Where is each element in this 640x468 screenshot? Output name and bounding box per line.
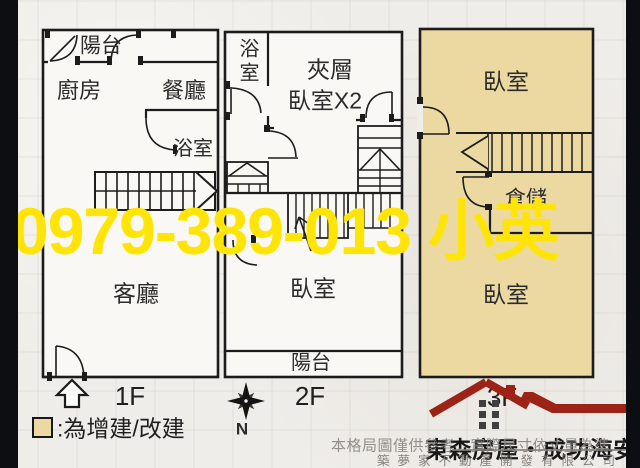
company-name: 築夢家不動產開發有限公司 <box>377 455 623 468</box>
room-label-1f-living: 客廳 <box>113 283 159 306</box>
disclaimer-strike-line <box>452 449 634 451</box>
room-label-2f-mezzanine-x2: 臥室X2 <box>288 90 362 113</box>
room-label-3f-bedroom-top: 臥室 <box>483 71 529 94</box>
room-label-3f-bedroom-bottom: 臥室 <box>483 284 529 307</box>
room-label-2f-bathroom: 浴室 <box>237 38 257 86</box>
compass-rose-icon <box>229 384 263 418</box>
letterbox-bar-left <box>0 0 18 468</box>
legend-addition-swatch <box>32 417 53 438</box>
room-label-2f-mezzanine: 夾層 <box>307 59 353 82</box>
compass-north-label: N <box>236 421 248 438</box>
room-label-1f-dining: 餐廳 <box>162 80 206 102</box>
floor-label-1f: 1F <box>115 383 145 409</box>
room-label-1f-bathroom: 浴室 <box>173 139 213 159</box>
floor-label-3f: 3F <box>487 384 517 410</box>
phone-watermark: 0979-389-013 小英 <box>12 198 558 264</box>
entry-arrow-icon <box>57 380 87 407</box>
floorplan-flyer: 陽台 廚房 餐廳 浴室 客廳 1F 浴室 夾層 臥室X2 臥室 陽台 2F N … <box>0 0 640 468</box>
floor-label-2f: 2F <box>295 383 325 409</box>
disclaimer-text: 本格局圖僅供參考．實際尺寸依丈量為準 <box>331 439 610 454</box>
room-label-1f-kitchen: 廚房 <box>57 80 101 102</box>
room-label-1f-balcony: 陽台 <box>80 36 122 57</box>
letterbox-bar-right <box>626 0 640 468</box>
legend-addition-label: :為增建/改建 <box>57 418 185 441</box>
room-label-2f-balcony: 陽台 <box>291 353 331 373</box>
room-label-2f-bedroom: 臥室 <box>290 278 336 301</box>
